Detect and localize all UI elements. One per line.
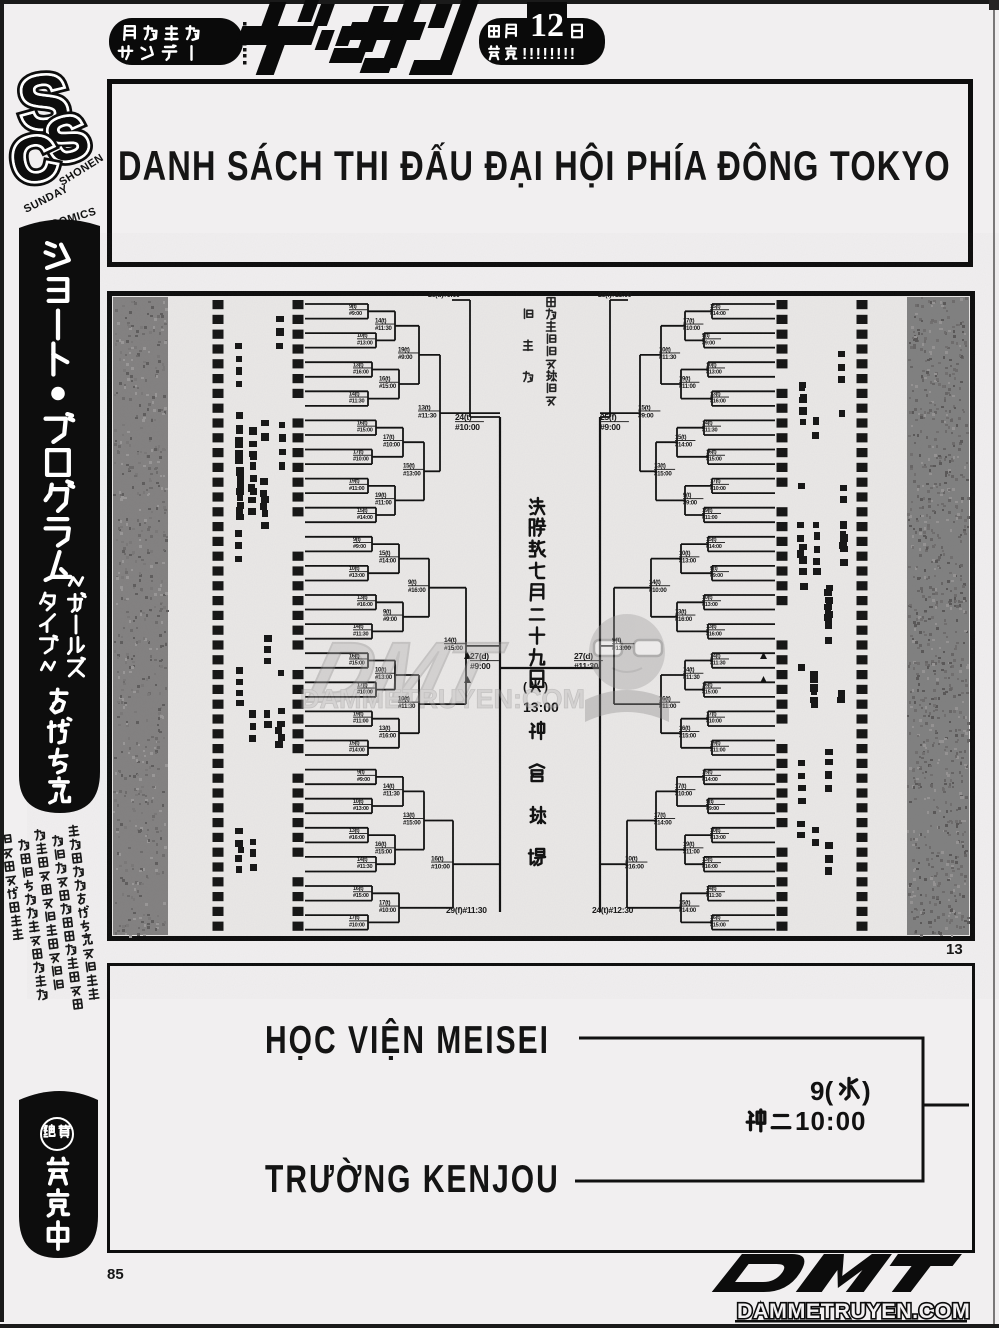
svg-text:DAMMETRUYEN.COM: DAMMETRUYEN.COM: [737, 1299, 970, 1323]
